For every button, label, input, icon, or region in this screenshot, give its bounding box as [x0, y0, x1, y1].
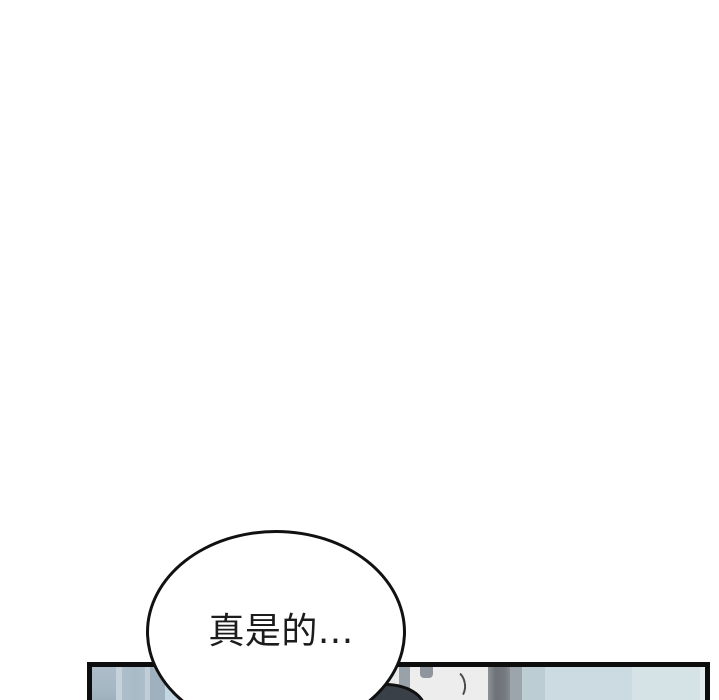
wall-blue-section [545, 667, 632, 700]
speech-text: 真是的... [198, 614, 353, 650]
wall-blue-section [522, 667, 545, 700]
door-hinge-tab [420, 667, 433, 678]
comic-page: 真是的... [0, 0, 719, 700]
wall-left-section [92, 667, 116, 700]
wall-edge-highlight [700, 667, 705, 700]
speech-bubble: 真是的... [146, 530, 406, 700]
wall-left-section [122, 667, 145, 700]
door-frame-dark [488, 667, 510, 700]
door-frame-mid [510, 667, 522, 700]
wall-blue-light-section [632, 667, 700, 700]
